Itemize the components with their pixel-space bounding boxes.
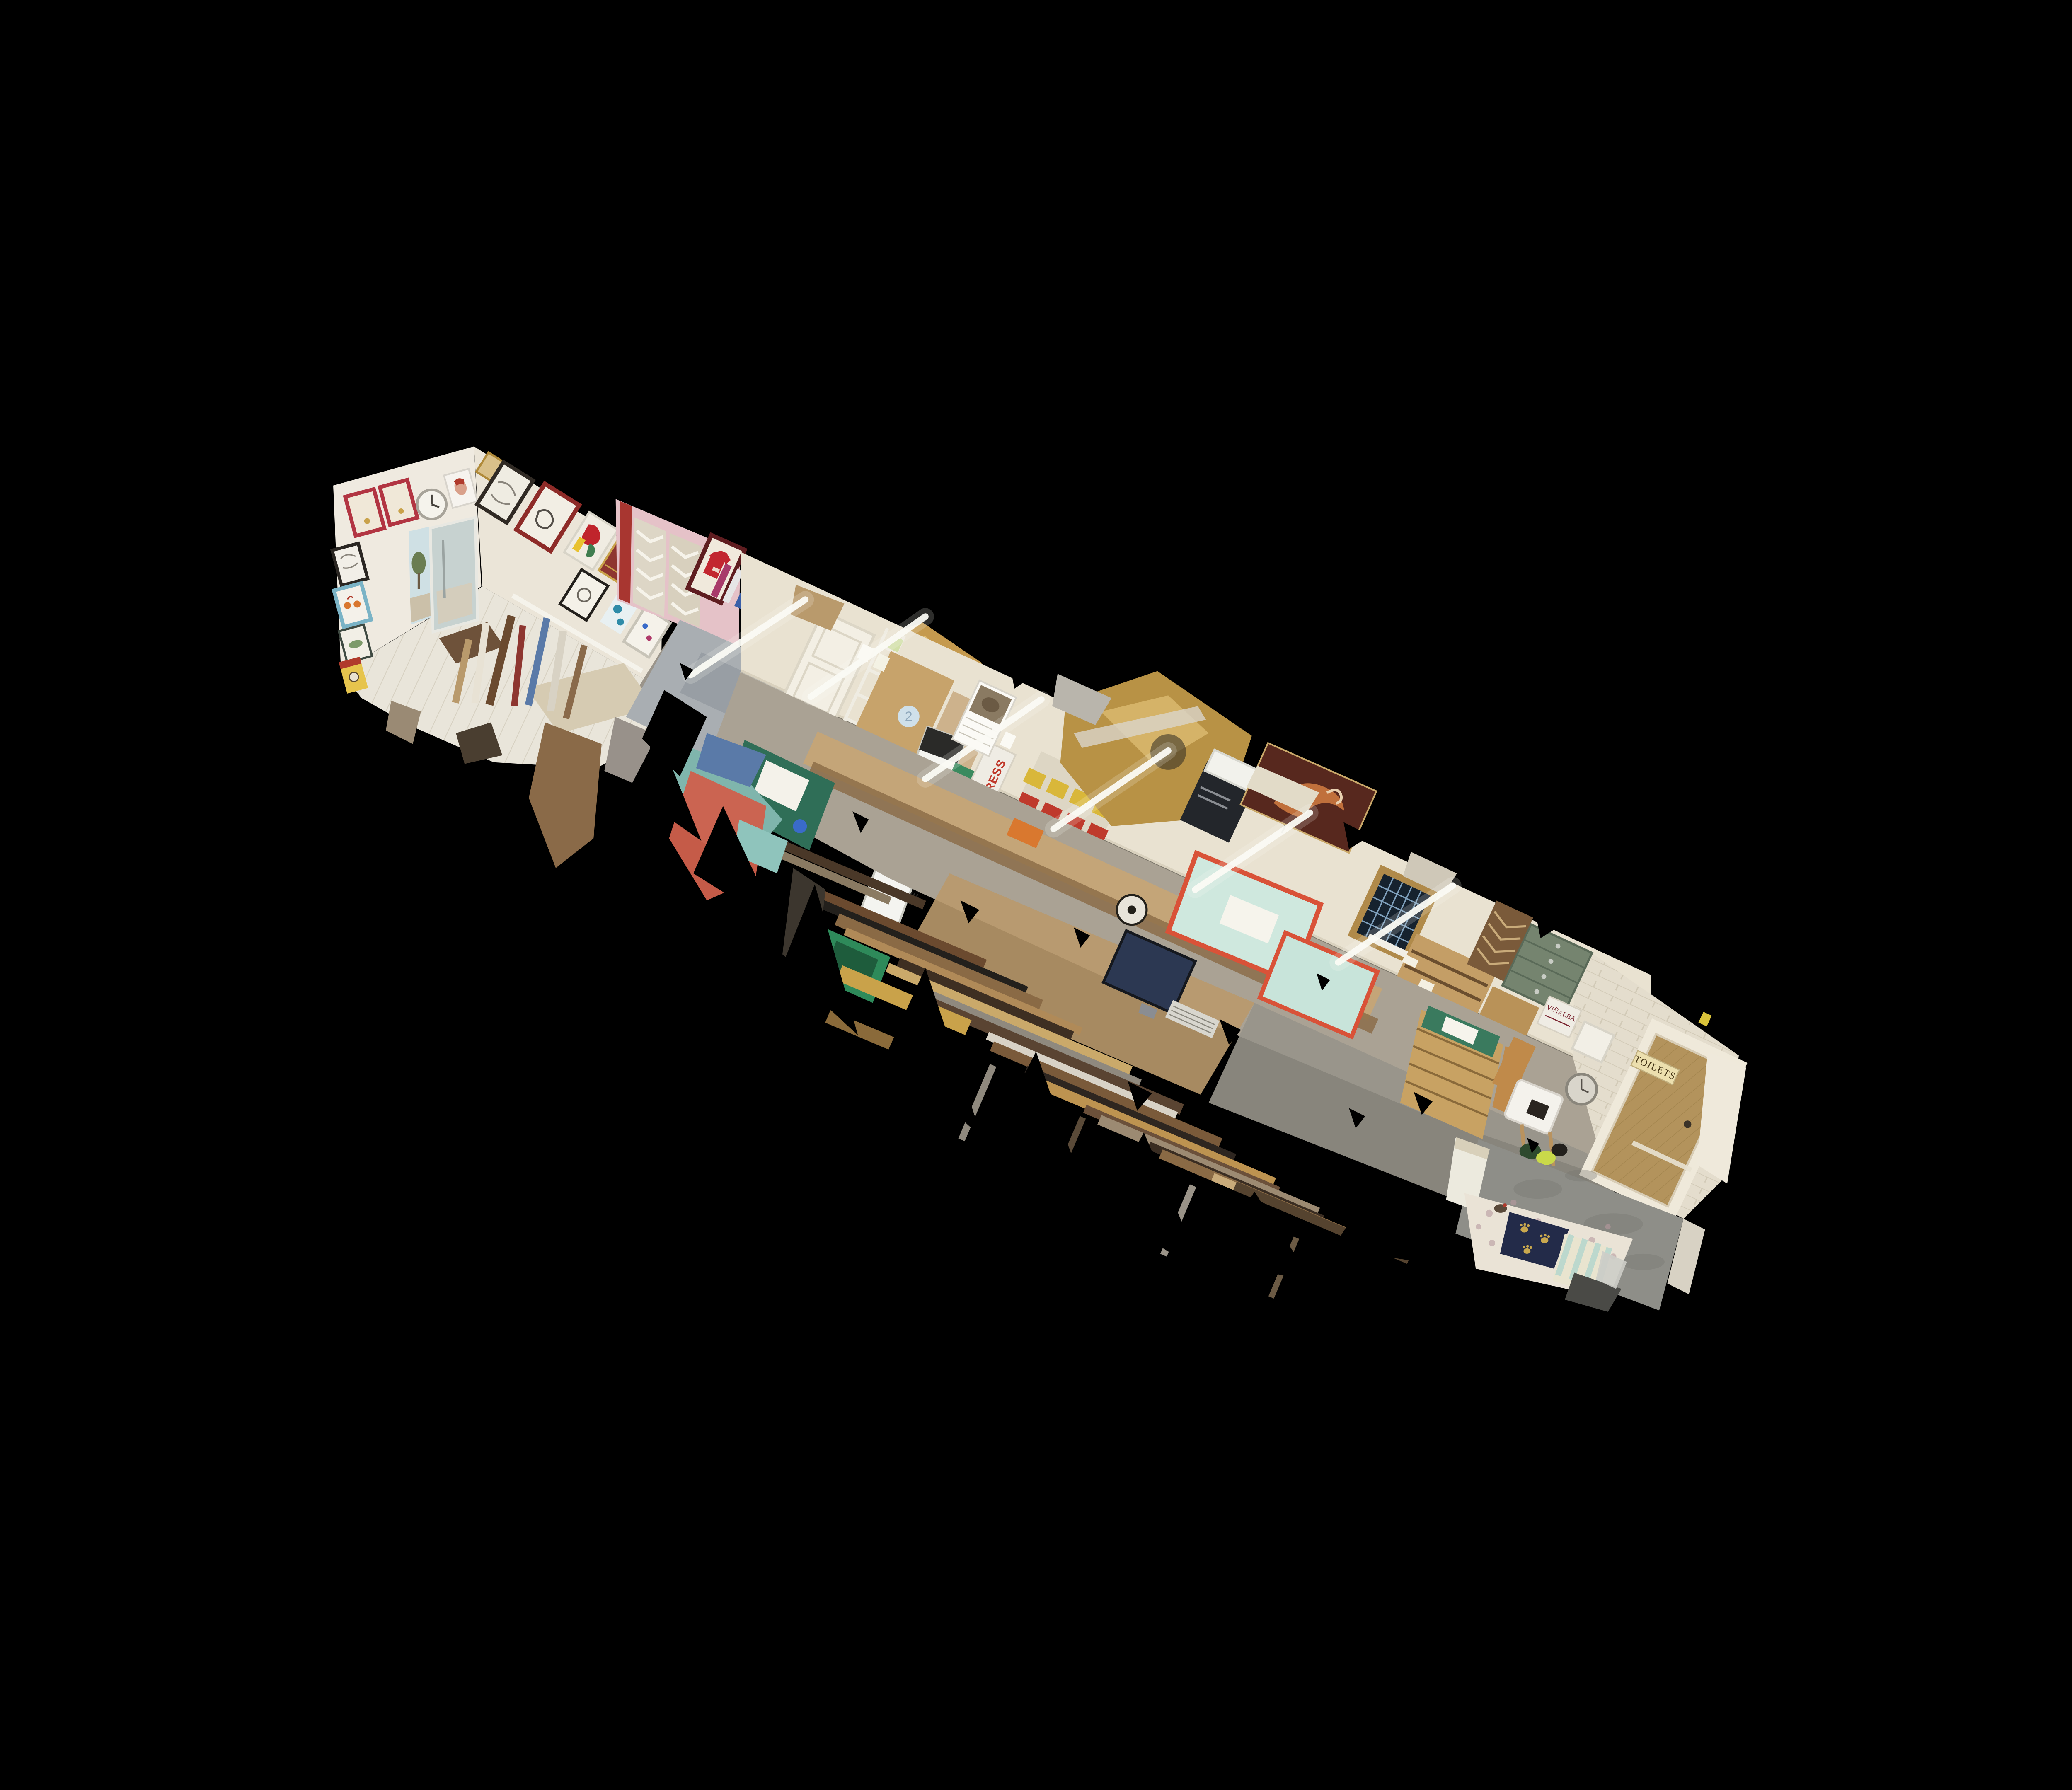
glass-entrance-door bbox=[430, 518, 477, 632]
blue-ball bbox=[793, 819, 807, 833]
tree-foliage bbox=[411, 552, 426, 575]
brick-wall-clock bbox=[1566, 1074, 1597, 1104]
door-knob bbox=[1684, 1120, 1691, 1128]
svg-text:2: 2 bbox=[905, 709, 913, 724]
dollhouse-viewport[interactable]: CSWHIT bbox=[0, 0, 2072, 1790]
wall-clock bbox=[417, 490, 446, 519]
door-handle bbox=[443, 540, 445, 598]
sidelight-window bbox=[409, 527, 431, 624]
red-door-frame bbox=[619, 501, 632, 603]
chevron-sample-panel bbox=[633, 518, 666, 617]
dollhouse-model-canvas[interactable]: CSWHIT bbox=[0, 0, 2072, 1790]
number-sticker: 2 bbox=[898, 706, 920, 727]
